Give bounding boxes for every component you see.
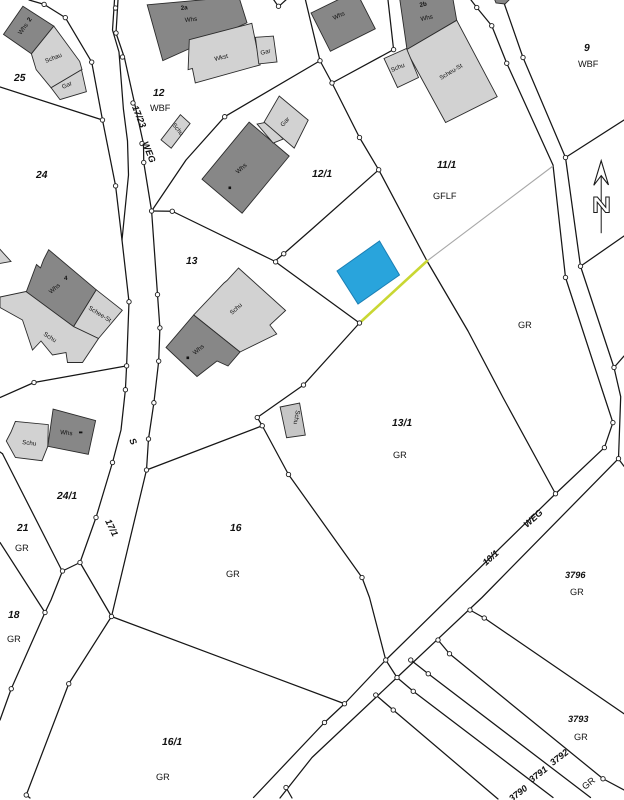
svg-text:WBF: WBF [150,103,171,113]
svg-text:Whs: Whs [60,429,73,437]
svg-text:2a: 2a [180,4,188,12]
svg-text:16/1: 16/1 [162,737,182,748]
svg-text:WBF: WBF [578,59,599,69]
svg-text:GR: GR [15,543,29,553]
svg-text:GR: GR [574,732,588,742]
svg-text:25: 25 [13,73,26,84]
svg-text:3796: 3796 [565,570,586,580]
svg-text:12/1: 12/1 [312,169,332,180]
svg-text:GR: GR [226,569,240,579]
svg-text:13/1: 13/1 [392,418,412,429]
svg-text:GR: GR [518,320,532,330]
svg-text:GR: GR [7,634,21,644]
svg-text:11/1: 11/1 [437,160,457,171]
svg-text:24: 24 [35,170,48,181]
svg-text:12: 12 [153,88,165,99]
svg-text:GR: GR [156,772,170,782]
svg-text:GR: GR [393,450,407,460]
svg-text:GR: GR [570,587,584,597]
svg-text:9: 9 [584,43,590,54]
svg-text:3793: 3793 [568,714,588,724]
svg-text:4: 4 [64,275,68,282]
svg-text:13: 13 [186,256,198,267]
svg-text:21: 21 [16,523,29,534]
svg-text:GFLF: GFLF [433,191,457,201]
svg-text:18: 18 [8,610,20,621]
svg-text:24/1: 24/1 [56,491,77,502]
svg-text:Whs: Whs [184,16,197,24]
svg-text:16: 16 [230,523,242,534]
